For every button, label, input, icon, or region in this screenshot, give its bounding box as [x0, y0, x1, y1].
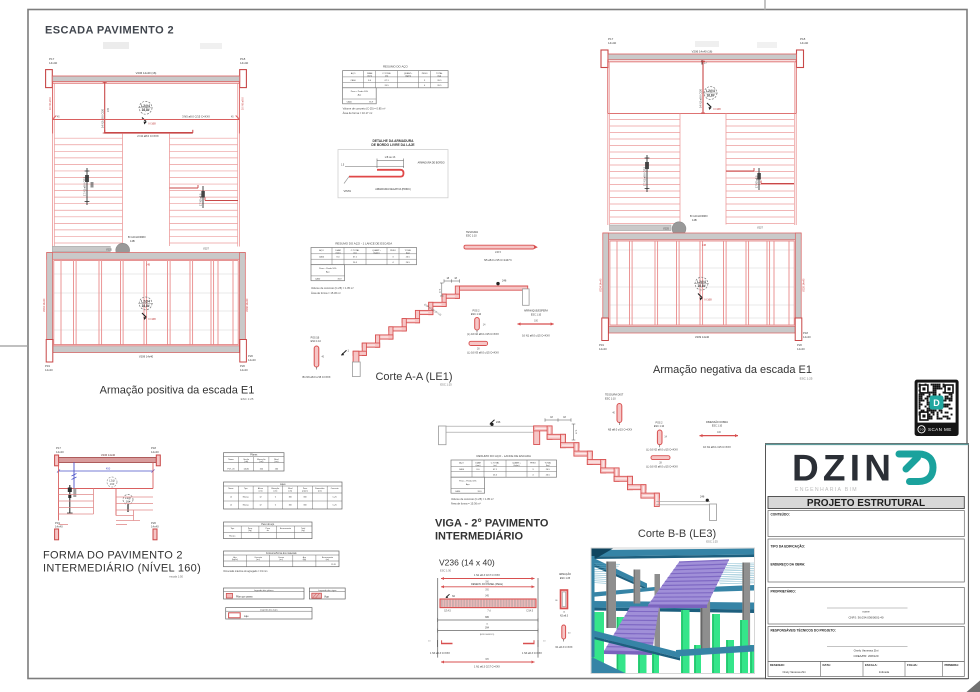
svg-text:(kg): (kg)	[303, 559, 307, 561]
svg-text:Legenda dos pilares: Legenda dos pilares	[254, 589, 275, 592]
svg-text:AÇO: AÇO	[459, 462, 464, 465]
svg-text:16 N1 ø8.0 c/15 C=XXX: 16 N1 ø8.0 c/15 C=XXX	[522, 333, 550, 337]
svg-text:Peso do aço: Peso do aço	[261, 524, 274, 526]
svg-text:CNPJ: 36.034.036/0001-40: CNPJ: 36.034.036/0001-40	[848, 615, 883, 619]
svg-text:14x40: 14x40	[45, 368, 53, 372]
svg-text:246: 246	[700, 495, 705, 499]
svg-text:Pilares: Pilares	[250, 454, 258, 457]
svg-text:ESC 1:10: ESC 1:10	[471, 313, 482, 316]
svg-text:POS 2: POS 2	[472, 309, 480, 312]
svg-text:PROPRIETÁRIO:: PROPRIETÁRIO:	[771, 589, 796, 594]
svg-text:Concreto: Concreto	[331, 487, 339, 490]
svg-text:Nome: Nome	[228, 459, 234, 461]
svg-text:DESENV. DO PAINEL (PELE): DESENV. DO PAINEL (PELE)	[471, 583, 503, 586]
svg-text:3 N5 ø8.0 C/15 C=XXX: 3 N5 ø8.0 C/15 C=XXX	[182, 114, 210, 118]
svg-text:INTERMEDIÁRIO (NÍVEL 160): INTERMEDIÁRIO (NÍVEL 160)	[43, 562, 201, 575]
svg-text:ESC 1:10: ESC 1:10	[654, 425, 665, 428]
svg-text:ESC 1:25: ESC 1:25	[440, 383, 452, 387]
svg-text:ESC 1:10: ESC 1:10	[311, 340, 322, 343]
svg-text:14x40: 14x40	[151, 450, 159, 454]
svg-text:Onely Vanessa Zini: Onely Vanessa Zini	[854, 649, 879, 653]
svg-text:Área de forma = 10.17 m²: Área de forma = 10.17 m²	[343, 111, 373, 115]
svg-text:RESUMO DO AÇO: RESUMO DO AÇO	[383, 65, 408, 69]
svg-text:14x40: 14x40	[803, 335, 811, 339]
svg-text:TIPO DA EDIFICAÇÃO:: TIPO DA EDIFICAÇÃO:	[771, 544, 806, 549]
svg-text:14x40: 14x40	[240, 368, 248, 372]
svg-text:(cm): (cm)	[318, 490, 322, 492]
svg-text:14 N2 ø8.0 C/20: 14 N2 ø8.0 C/20	[699, 88, 703, 108]
svg-text:16,8#: 16,8#	[142, 304, 150, 308]
svg-text:14B: 14B	[692, 218, 697, 222]
svg-text:POS 1B: POS 1B	[311, 337, 320, 340]
svg-text:TESOURA DIST: TESOURA DIST	[605, 394, 624, 397]
svg-text:CA50: CA50	[347, 101, 353, 104]
svg-text:DETALHE DA ARMADURA: DETALHE DA ARMADURA	[372, 139, 414, 143]
svg-text:PESO: PESO	[390, 250, 396, 252]
svg-text:(cm): (cm)	[288, 490, 292, 492]
svg-text:INTERMEDIÁRIO: INTERMEDIÁRIO	[435, 530, 523, 543]
svg-text:(m): (m)	[493, 465, 496, 467]
svg-text:TESOURA: TESOURA	[466, 231, 478, 234]
svg-text:14x40: 14x40	[56, 450, 64, 454]
svg-text:PESO: PESO	[422, 73, 428, 75]
svg-text:12.65: 12.65	[331, 564, 336, 566]
svg-text:Maciça: Maciça	[243, 505, 250, 507]
svg-text:próprio: próprio	[302, 489, 308, 492]
svg-text:PRIMEIRA:: PRIMEIRA:	[945, 663, 960, 667]
svg-text:ESC 1:10: ESC 1:10	[605, 397, 616, 400]
svg-text:12: 12	[259, 505, 261, 507]
svg-text:POS 2: POS 2	[655, 421, 663, 424]
svg-text:Maciça: Maciça	[243, 497, 250, 499]
svg-text:(L) 16 N2 ø8.0 c/15 C=XXX: (L) 16 N2 ø8.0 c/15 C=XXX	[467, 332, 499, 336]
svg-text:16,8#: 16,8#	[707, 93, 715, 97]
svg-text:V234 14x40: V234 14x40	[599, 278, 602, 292]
svg-text:Volume de concreto (C-25) = 1.: Volume de concreto (C-25) = 1.05 m³	[451, 497, 494, 501]
svg-text:246.5: 246.5	[495, 251, 502, 254]
svg-text:N5 ø8.0 c/15 C=1447 h: N5 ø8.0 c/15 C=1447 h	[484, 258, 512, 262]
svg-text:AÇO: AÇO	[351, 72, 356, 75]
svg-text:14 N2 ø8.0 C/20: 14 N2 ø8.0 C/20	[100, 108, 104, 128]
svg-text:N 168: N 168	[714, 107, 722, 111]
svg-text:Volume de concreto (C-25) = 0.: Volume de concreto (C-25) = 0.85 m³	[343, 106, 386, 110]
svg-text:CA50: CA50	[315, 278, 321, 281]
svg-text:Peso + Perda 10%: Peso + Perda 10%	[319, 267, 337, 270]
svg-text:12: 12	[259, 497, 261, 499]
svg-text:ESC 1:25: ESC 1:25	[706, 540, 718, 544]
svg-text:V236 (14 x 40): V236 (14 x 40)	[439, 558, 495, 568]
svg-text:10 N6 ø8.0: 10 N6 ø8.0	[240, 97, 244, 110]
svg-text:(L) 16 N3 ø8.0 c/15 C=XXX: (L) 16 N3 ø8.0 c/15 C=XXX	[467, 351, 499, 355]
svg-text:DATA:: DATA:	[823, 663, 831, 667]
svg-text:L2: L2	[230, 505, 232, 507]
svg-text:Corte A-A (LE1): Corte A-A (LE1)	[375, 371, 452, 383]
svg-text:ESCADA PAVIMENTO 2: ESCADA PAVIMENTO 2	[45, 25, 174, 37]
svg-text:ESC 1:10: ESC 1:10	[712, 424, 723, 427]
svg-text:(m²): (m²)	[326, 558, 330, 561]
svg-text:Volume de concreto (C-25) = 1.: Volume de concreto (C-25) = 1.05 m³	[311, 286, 354, 290]
svg-text:V237: V237	[757, 227, 763, 230]
svg-text:(mm): (mm)	[367, 75, 372, 77]
svg-text:300: 300	[303, 505, 306, 507]
svg-text:(m): (m)	[353, 252, 356, 254]
svg-text:ENGENHARIA BIM: ENGENHARIA BIM	[795, 487, 858, 493]
svg-text:17 N3 ø8.0: 17 N3 ø8.0	[756, 175, 759, 188]
svg-text:V238 14x40: V238 14x40	[246, 298, 249, 312]
svg-text:(kg/m): (kg/m)	[405, 75, 411, 77]
svg-text:Laje: Laje	[244, 615, 249, 618]
svg-text:1 N1 ø6.3 C/17 C=XXX: 1 N1 ø6.3 C/17 C=XXX	[474, 666, 500, 669]
svg-text:17 N3 ø8.0: 17 N3 ø8.0	[200, 193, 203, 206]
svg-text:VIGA - 2° PAVIMENTO: VIGA - 2° PAVIMENTO	[435, 518, 549, 530]
svg-text:FOLHA:: FOLHA:	[907, 663, 918, 667]
svg-text:Escoramento: Escoramento	[280, 527, 291, 530]
svg-text:380: 380	[485, 616, 490, 619]
svg-text:16 N1 ø8.0 c/15 C=XXX: 16 N1 ø8.0 c/15 C=XXX	[703, 445, 731, 449]
svg-text:Peso + Perda 10%: Peso + Perda 10%	[351, 90, 369, 93]
svg-text:14x40: 14x40	[151, 525, 159, 529]
svg-text:(L) 16 N3 ø8.0 c/15 C=XXX: (L) 16 N3 ø8.0 c/15 C=XXX	[646, 464, 678, 468]
svg-text:CA50: CA50	[455, 490, 461, 493]
svg-text:N1 ø6.3 C=XXX: N1 ø6.3 C=XXX	[555, 646, 572, 649]
svg-text:ESC 1:25: ESC 1:25	[800, 377, 813, 381]
svg-text:Onely Vanessa Zini: Onely Vanessa Zini	[782, 670, 806, 674]
svg-text:Área de forma = 15.36 m²: Área de forma = 15.36 m²	[451, 501, 481, 505]
svg-text:(L) 16 N2 ø8.0 c/15 C=XXX: (L) 16 N2 ø8.0 c/15 C=XXX	[646, 447, 678, 451]
svg-text:14x40: 14x40	[599, 347, 607, 351]
svg-text:PESO: PESO	[530, 463, 536, 465]
svg-text:??: ??	[919, 427, 924, 432]
svg-text:(kg): (kg)	[302, 530, 306, 532]
svg-text:246: 246	[502, 279, 507, 283]
svg-text:245: 245	[107, 107, 110, 112]
svg-text:(kg): (kg)	[406, 252, 410, 254]
svg-text:P17..20: P17..20	[228, 469, 236, 471]
svg-text:C/14.5: C/14.5	[444, 611, 451, 613]
svg-text:V209 14x40: V209 14x40	[139, 355, 154, 359]
svg-text:(kg): (kg)	[438, 75, 442, 77]
svg-text:1 N3 ø6.3 C=XXX: 1 N3 ø6.3 C=XXX	[522, 652, 542, 655]
svg-text:SCAN ME: SCAN ME	[928, 427, 952, 432]
svg-text:V206 14x40 (16): V206 14x40 (16)	[692, 50, 713, 54]
svg-text:16,8#: 16,8#	[142, 108, 150, 112]
svg-text:ESC 1:10: ESC 1:10	[466, 235, 477, 238]
svg-text:(kg/m³): (kg/m³)	[232, 558, 238, 561]
svg-text:Legenda das lajes: Legenda das lajes	[260, 609, 279, 611]
svg-text:16,8#: 16,8#	[698, 284, 706, 288]
svg-text:V236 14x40: V236 14x40	[101, 453, 116, 457]
svg-text:14x40: 14x40	[243, 469, 249, 471]
svg-text:B CACHORRO: B CACHORRO	[128, 235, 146, 239]
svg-text:14x40: 14x40	[800, 41, 809, 45]
svg-text:(m²): (m²)	[280, 558, 284, 561]
svg-text:16#: 16#	[126, 499, 131, 503]
svg-text:(kg): (kg)	[546, 465, 550, 467]
svg-text:(cm): (cm)	[259, 490, 263, 492]
svg-text:0: 0	[275, 497, 276, 499]
svg-text:160: 160	[289, 505, 292, 507]
svg-text:(kg/m): (kg/m)	[514, 465, 520, 467]
svg-text:ARRANQUE/ESPERA: ARRANQUE/ESPERA	[524, 310, 548, 313]
svg-text:ESCALA:: ESCALA:	[865, 663, 877, 667]
svg-text:ARMAÇÃO: ARMAÇÃO	[559, 573, 571, 576]
svg-text:Dimensão máxima do agregado =: Dimensão máxima do agregado = 19 mm	[224, 570, 268, 573]
svg-text:(cm): (cm)	[274, 461, 278, 463]
svg-text:B CACHORRO: B CACHORRO	[690, 214, 708, 218]
svg-text:(m): (m)	[385, 75, 388, 77]
svg-text:CREA/PR: 208/120: CREA/PR: 208/120	[854, 654, 879, 658]
svg-text:V235: V235	[663, 228, 669, 231]
svg-text:Pilar que passa: Pilar que passa	[236, 595, 253, 598]
svg-text:14B: 14B	[702, 244, 707, 247]
svg-text:17 N1 ø8.0 C/15: 17 N1 ø8.0 C/15	[643, 166, 647, 186]
svg-text:N 168: N 168	[149, 122, 157, 126]
svg-text:CA50: CA50	[459, 468, 465, 471]
svg-text:do: do	[267, 530, 269, 532]
svg-text:N 168: N 168	[149, 317, 157, 321]
svg-text:DESENHO:: DESENHO:	[770, 663, 785, 667]
svg-text:394: 394	[485, 627, 490, 630]
svg-text:RESUMO DO AÇO - 1 LANCE DE ESC: RESUMO DO AÇO - 1 LANCE DE ESCADA	[335, 242, 392, 246]
svg-text:1 N1 ø6.3 C/17 C=XXX: 1 N1 ø6.3 C/17 C=XXX	[474, 574, 500, 577]
svg-text:ARMADURA NEGATIVA (PRINC): ARMADURA NEGATIVA (PRINC)	[375, 188, 411, 191]
svg-text:ENDEREÇO DA OBRA:: ENDEREÇO DA OBRA:	[771, 563, 806, 567]
svg-text:ESC 1:25: ESC 1:25	[241, 397, 254, 401]
svg-text:Indicada: Indicada	[879, 670, 890, 674]
svg-text:14x40: 14x40	[248, 358, 256, 362]
svg-text:(kg/m): (kg/m)	[374, 252, 380, 254]
svg-text:PROJETO ESTRUTURAL: PROJETO ESTRUTURAL	[807, 498, 925, 509]
svg-text:14x40: 14x40	[49, 61, 58, 65]
svg-text:VISTA: VISTA	[344, 189, 352, 193]
svg-text:0: 0	[275, 505, 276, 507]
svg-text:Nome: Nome	[228, 488, 233, 490]
svg-text:DIMENSÃO DOBRA: DIMENSÃO DOBRA	[706, 421, 728, 424]
svg-text:ARMADURA DE BORDO: ARMADURA DE BORDO	[418, 162, 445, 165]
svg-text:14B: 14B	[130, 239, 135, 243]
svg-text:CA50: CA50	[350, 79, 356, 82]
svg-text:RESPONSÁVEIS TÉCNICOS DO PROJE: RESPONSÁVEIS TÉCNICOS DO PROJETO:	[771, 628, 836, 633]
svg-text:2 N4 ø8.0 C=XXX: 2 N4 ø8.0 C=XXX	[137, 134, 159, 138]
svg-text:C-25: C-25	[333, 497, 337, 499]
svg-text:(m³): (m³)	[256, 558, 260, 561]
svg-text:Viga: Viga	[324, 595, 329, 598]
svg-text:(cm): (cm)	[259, 461, 263, 463]
svg-text:450: 450	[106, 467, 111, 471]
svg-text:Corte B-B (LE3): Corte B-B (LE3)	[638, 528, 716, 540]
svg-text:14x40: 14x40	[608, 41, 617, 45]
svg-text:V206 14x40 (16): V206 14x40 (16)	[136, 71, 157, 75]
svg-text:Peso + Perda 10%: Peso + Perda 10%	[459, 479, 477, 482]
svg-text:Armação positiva da escada E1: Armação positiva da escada E1	[100, 385, 255, 397]
svg-text:N5 ø8.0 c/15 C=XXX: N5 ø8.0 c/15 C=XXX	[608, 427, 632, 431]
svg-text:V237: V237	[203, 248, 209, 251]
svg-text:N 168: N 168	[705, 298, 713, 302]
svg-text:CONTEÚDO:: CONTEÚDO:	[771, 512, 790, 517]
svg-text:ESC 1:10: ESC 1:10	[531, 313, 542, 316]
svg-text:Armação negativa da escada E1: Armação negativa da escada E1	[653, 364, 812, 376]
svg-text:246: 246	[496, 420, 501, 424]
svg-text:ESC 1:25: ESC 1:25	[560, 577, 571, 580]
svg-text:L2: L2	[230, 497, 232, 499]
svg-text:(mm): (mm)	[476, 465, 481, 467]
svg-text:DZIN: DZIN	[792, 448, 895, 489]
svg-text:14x40: 14x40	[797, 347, 805, 351]
svg-text:C/14.5: C/14.5	[526, 611, 533, 613]
svg-text:DE BORDO LIVRE DA LAJE: DE BORDO LIVRE DA LAJE	[371, 143, 415, 147]
svg-text:B1 N6 ø8.0 c/15 C=XXX: B1 N6 ø8.0 c/15 C=XXX	[302, 375, 330, 379]
svg-text:ESC 1:50: ESC 1:50	[440, 569, 452, 573]
svg-text:L/8 ou 1h: L/8 ou 1h	[385, 156, 396, 159]
svg-text:Área de forma = 15.36 m²: Área de forma = 15.36 m²	[311, 291, 341, 295]
svg-text:160: 160	[289, 497, 292, 499]
svg-text:AÇO: AÇO	[319, 249, 324, 252]
svg-text:V238 14x40: V238 14x40	[802, 278, 805, 292]
svg-text:(EIXO A EIXO): (EIXO A EIXO)	[480, 633, 495, 636]
svg-text:Consumo/forma dos materiais: Consumo/forma dos materiais	[266, 552, 297, 555]
svg-text:Tipo: Tipo	[244, 488, 248, 490]
svg-text:C-25: C-25	[333, 505, 337, 507]
svg-text:V235: V235	[106, 249, 112, 252]
svg-text:300: 300	[303, 497, 306, 499]
svg-text:D: D	[933, 398, 940, 408]
svg-text:(mm): (mm)	[336, 252, 341, 254]
svg-text:V209 14x40: V209 14x40	[695, 335, 710, 339]
svg-text:V234 14x40: V234 14x40	[43, 298, 46, 312]
svg-text:Legenda das vigas: Legenda das vigas	[318, 590, 337, 592]
svg-text:16#: 16#	[110, 482, 115, 486]
svg-text:FORMA DO PAVIMENTO 2: FORMA DO PAVIMENTO 2	[43, 550, 183, 562]
svg-text:Tipo: Tipo	[231, 528, 235, 530]
svg-text:14B: 14B	[146, 263, 151, 266]
svg-text:(cm): (cm)	[273, 490, 277, 492]
svg-text:14x40: 14x40	[55, 525, 63, 529]
svg-text:escala 1:50: escala 1:50	[169, 575, 183, 579]
svg-text:(kg): (kg)	[248, 530, 252, 532]
svg-text:N2 ø6.3: N2 ø6.3	[560, 616, 569, 618]
svg-text:14x40: 14x40	[240, 61, 249, 65]
svg-text:Maciça: Maciça	[229, 536, 236, 538]
svg-text:nome: nome	[862, 610, 870, 614]
svg-text:Lajes: Lajes	[280, 484, 286, 486]
svg-text:CA50: CA50	[319, 256, 325, 259]
svg-text:1 N3 ø6.3 C=XXX: 1 N3 ø6.3 C=XXX	[430, 652, 450, 655]
svg-text:(cm): (cm)	[244, 461, 248, 463]
svg-text:RESUMO DO AÇO - LANCE DE ESCAD: RESUMO DO AÇO - LANCE DE ESCADA	[477, 454, 532, 458]
svg-text:10 N6 ø8.0: 10 N6 ø8.0	[48, 97, 52, 110]
